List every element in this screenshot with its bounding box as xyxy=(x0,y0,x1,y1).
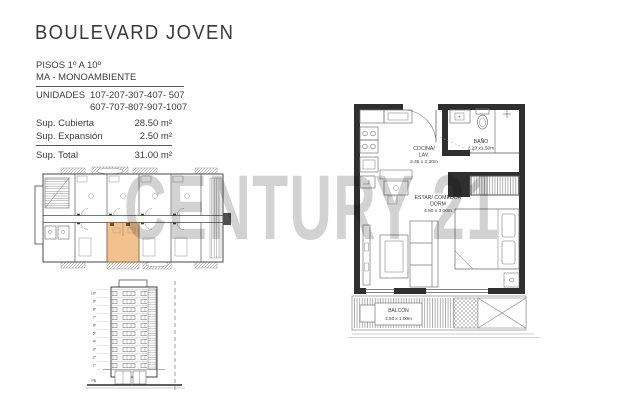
svg-text:7º: 7º xyxy=(93,315,97,319)
living-dim: 4.80 x 3.00m xyxy=(424,208,452,214)
surface-table: Sup. Cubierta 28.50 m² Sup. Expansión 2.… xyxy=(36,117,172,162)
svg-text:2º: 2º xyxy=(93,355,97,359)
svg-text:10º: 10º xyxy=(91,291,97,295)
svg-text:5º: 5º xyxy=(93,331,97,335)
floor-ticks xyxy=(97,289,111,370)
building-elevation: 10º 9º 8º 7º 6º 5º 4º 3º 2º 1º PB xyxy=(85,277,185,399)
divider xyxy=(36,86,184,87)
surface-total-value: 31.00 m² xyxy=(135,149,173,162)
window-grid xyxy=(112,289,147,369)
service-shaft xyxy=(148,289,156,369)
balcony xyxy=(348,296,540,338)
surface-value: 2.50 m² xyxy=(140,130,172,143)
surface-row-cubierta: Sup. Cubierta 28.50 m² xyxy=(36,117,172,130)
units-label: UNIDADES xyxy=(36,90,90,114)
floor-labels: 10º 9º 8º 7º 6º 5º 4º 3º 2º 1º PB xyxy=(91,291,97,383)
surface-row-expansion: Sup. Expansión 2.50 m² xyxy=(36,130,172,143)
surface-total-label: Sup. Total xyxy=(36,149,78,162)
surface-row-total: Sup. Total 31.00 m² xyxy=(36,149,172,162)
balcony-dim: 2.50 x 1.00m xyxy=(385,316,412,321)
svg-text:1º: 1º xyxy=(93,363,97,367)
ground-floor-label: PB xyxy=(91,379,96,383)
svg-text:3º: 3º xyxy=(93,347,97,351)
surface-value: 28.50 m² xyxy=(135,117,173,130)
surface-label: Sup. Cubierta xyxy=(36,117,94,130)
kitchen-fixtures xyxy=(360,110,412,204)
units-line-1: 107-207-307-407- 507 xyxy=(90,90,187,102)
svg-text:6º: 6º xyxy=(93,323,97,327)
bath-dim: 2.20 x1.50m xyxy=(468,146,494,152)
surface-label: Sup. Expansión xyxy=(36,130,103,143)
units-line-2: 607-707-807-907-1007 xyxy=(90,102,187,114)
unit-type: MA - MONOAMBIENTE xyxy=(36,72,196,84)
stair-hatch xyxy=(470,176,519,195)
bed xyxy=(455,209,519,287)
floors-range: PISOS 1º A 10º xyxy=(36,60,196,72)
svg-text:9º: 9º xyxy=(93,299,97,303)
units-numbers: 107-207-307-407- 507 607-707-807-907-100… xyxy=(90,90,187,114)
living-label: ESTAR/ COMEDOR xyxy=(415,195,462,201)
windows xyxy=(366,290,488,293)
bath-fixtures xyxy=(450,109,511,129)
kitchen-label: COCINA/ xyxy=(413,146,435,152)
unit-floor-plan: COCINA/ LAV. 2.45 x 2.30m BAÑO 2.20 x1.5… xyxy=(348,93,540,340)
roof-box xyxy=(119,280,147,287)
units-list: UNIDADES 107-207-307-407- 507 607-707-80… xyxy=(36,90,196,114)
living-label-2: DORM xyxy=(430,202,446,208)
info-block: PISOS 1º A 10º MA - MONOAMBIENTE UNIDADE… xyxy=(36,60,196,114)
kitchen-label-2: LAV. xyxy=(419,153,429,159)
page-title: BOULEVARD JOVEN xyxy=(35,22,234,45)
kitchen-dim: 2.45 x 2.30m xyxy=(410,159,438,165)
svg-text:4º: 4º xyxy=(93,339,97,343)
divider xyxy=(36,145,172,146)
living-furniture xyxy=(363,221,438,287)
bath-label: BAÑO xyxy=(474,138,489,145)
balcony-label: BALCÓN xyxy=(388,307,409,314)
floorplan-sheet: BOULEVARD JOVEN PISOS 1º A 10º MA - MONO… xyxy=(0,0,638,405)
svg-text:8º: 8º xyxy=(93,307,97,311)
